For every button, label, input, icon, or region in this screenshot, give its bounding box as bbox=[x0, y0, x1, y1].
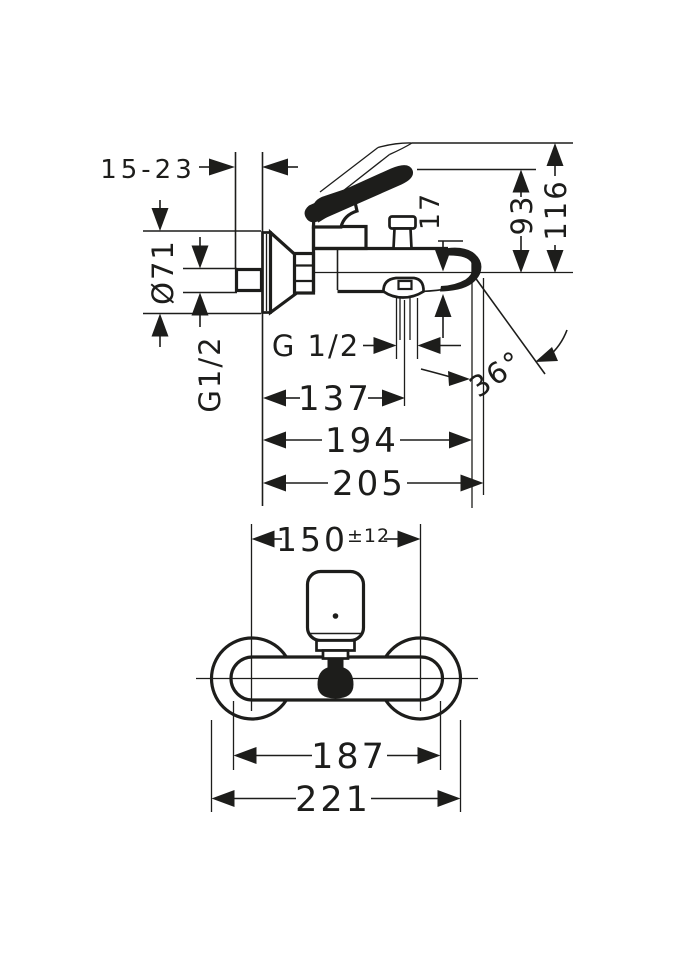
spout-angle-label: 36° bbox=[463, 343, 530, 404]
dimension-connection-spacing: 150 ±12 bbox=[252, 520, 421, 559]
dimension-aerator-thread: G 1/2 bbox=[272, 298, 461, 363]
max-height-label: 116 bbox=[539, 179, 573, 240]
dimension-spout-height: 93 bbox=[505, 170, 539, 274]
wall-union bbox=[237, 233, 314, 313]
dimension-wall-offset: 15-23 bbox=[100, 155, 298, 185]
cartridge-block bbox=[314, 227, 367, 249]
escutcheon-diameter-label: Ø71 bbox=[146, 239, 180, 305]
handle-dot bbox=[333, 613, 339, 619]
aerator-thread-label: G 1/2 bbox=[272, 329, 360, 363]
connection-spacing-label: 150 bbox=[276, 520, 348, 559]
dimension-outlet-drop: 17 bbox=[415, 192, 463, 338]
spout-height-label: 93 bbox=[505, 195, 539, 236]
wall-thread-label: G1/2 bbox=[193, 335, 227, 412]
lever-handle-side bbox=[305, 143, 413, 227]
union-nut bbox=[295, 254, 314, 294]
reach-aerator-label: 137 bbox=[298, 379, 372, 419]
front-view: 150 ±12 187 221 bbox=[196, 520, 478, 820]
aerator bbox=[383, 278, 423, 298]
handle-neck bbox=[323, 651, 348, 659]
escutcheon-cone bbox=[271, 233, 296, 313]
diverter-knob bbox=[390, 217, 416, 249]
overall-width-label: 221 bbox=[295, 780, 371, 820]
side-view: 15-23 Ø71 G1/2 116 bbox=[100, 143, 573, 508]
outlet-drop-label: 17 bbox=[415, 192, 446, 230]
faucet-technical-drawing: 15-23 Ø71 G1/2 116 bbox=[0, 0, 675, 960]
wall-offset-label: 15-23 bbox=[100, 155, 196, 185]
dimension-max-height: 116 bbox=[539, 143, 573, 273]
lever-blade bbox=[305, 165, 413, 222]
reach-spout-label: 194 bbox=[325, 421, 399, 461]
drawing-canvas: 15-23 Ø71 G1/2 116 bbox=[0, 0, 675, 960]
dimension-max-reach: 205 bbox=[263, 278, 484, 504]
max-reach-label: 205 bbox=[332, 464, 406, 504]
handle-collar bbox=[317, 641, 355, 651]
wall-reference-lines bbox=[236, 152, 263, 506]
lever-handle-front bbox=[308, 572, 364, 659]
dimension-wall-thread: G1/2 bbox=[183, 237, 237, 413]
body-width-label: 187 bbox=[311, 737, 387, 777]
connection-tolerance-label: ±12 bbox=[347, 525, 390, 547]
